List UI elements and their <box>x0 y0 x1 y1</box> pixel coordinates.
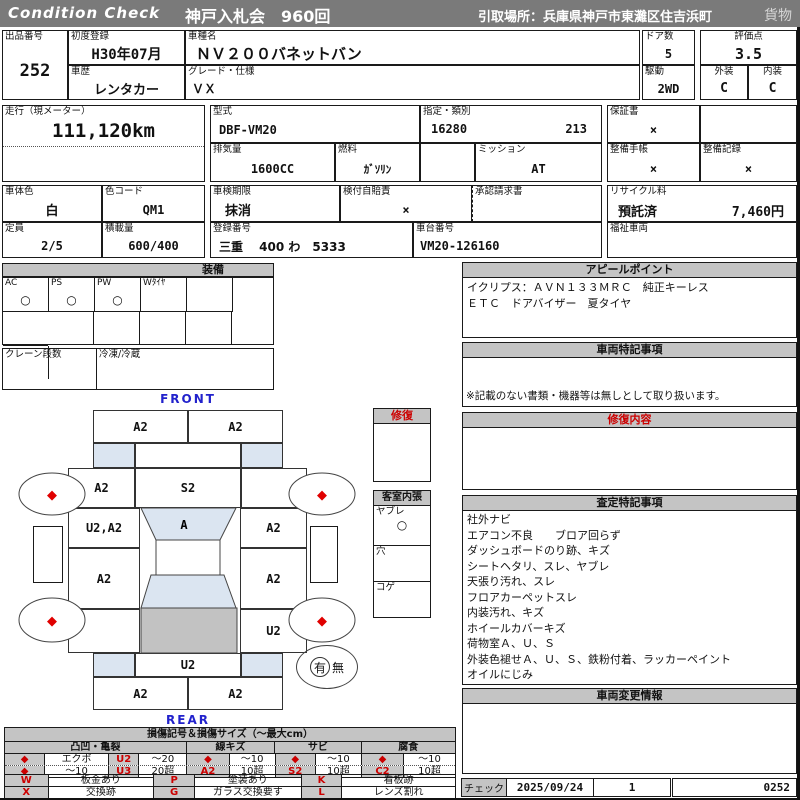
equipment-cell-empty <box>48 312 94 345</box>
inspection-box: 車検期限 抹消 <box>210 185 340 222</box>
assessment-line: 外装色褪せＡ、Ｕ、Ｓ、鉄粉付着、ラッカーペイント <box>463 652 796 668</box>
panel-left-front-fender: A2 <box>68 468 135 508</box>
load-capacity-box: 積載量 600/400 <box>102 222 205 258</box>
interior-grade-label: 内装 <box>749 66 796 78</box>
equipment-cell-ac: AC ○ <box>3 278 49 312</box>
maintenance-record-label: 整備記録 <box>701 144 796 156</box>
recycle-fee-box: リサイクル料 預託済 7,460円 <box>607 185 797 222</box>
legend-symbol: ◆ <box>276 754 316 765</box>
legend-desc: 板金あり <box>49 775 155 786</box>
equipment-label: Wﾀｲﾔ <box>141 278 186 290</box>
legend-symbol: ◆ <box>187 754 229 765</box>
presence-indicator: 有 無 <box>296 645 358 689</box>
history-label: 車歴 <box>69 66 184 78</box>
score-box: 評価点 3.5 <box>700 30 797 65</box>
drive-box: 駆動 2WD <box>642 65 695 100</box>
panel-left-front-door: U2,A2 <box>68 508 140 548</box>
model-name-label: 車種名 <box>186 31 639 43</box>
equipment-cell-wtire: Wﾀｲﾔ <box>141 278 187 312</box>
repair-mini-box: 修復 <box>373 408 431 482</box>
damage-diamond-icon: ◆ <box>317 614 327 629</box>
auction-title: 神戸入札会 960回 <box>185 3 330 27</box>
equipment-label: PS <box>49 278 94 290</box>
panel-rear-bumper-right: A2 <box>188 677 283 710</box>
appeal-line: ＥＴＣ ドアバイザー 夏タイヤ <box>463 296 796 312</box>
panel-taillight-right <box>241 653 283 677</box>
body-color-value: 白 <box>3 198 101 221</box>
registration-number-value: 三重 400 わ 5333 <box>211 235 412 257</box>
exterior-grade-label: 外装 <box>701 66 747 78</box>
legend-group: サビ <box>275 742 361 753</box>
equipment-value <box>141 290 186 311</box>
panel-taillight-left <box>93 653 135 677</box>
legend-row: X 交換跡 G ガラス交換要す L レンズ割れ <box>5 787 455 798</box>
maintenance-book-box: 整備手帳 × <box>607 143 700 182</box>
legend-desc: 塗装あり <box>195 775 302 786</box>
windshield-code: A <box>180 518 188 532</box>
drive-value: 2WD <box>643 78 694 99</box>
presence-no: 無 <box>332 659 344 676</box>
recycle-fee-value: 7,460円 <box>732 201 784 220</box>
vehicle-notes-footer: ※記載のない書類・機器等は無しとして取り扱います。 <box>466 388 725 403</box>
equipment-cell-empty <box>3 312 48 346</box>
assessment-line: 内装汚れ、キズ <box>463 605 796 621</box>
cabin-interior-box: 客室内張 ヤブレ ○ 穴 コゲ <box>373 490 431 618</box>
panel-grille <box>135 443 241 468</box>
load-capacity-value: 600/400 <box>103 235 204 257</box>
exterior-grade-box: 外装 C <box>700 65 748 100</box>
legend-symbol: U2 <box>109 754 139 765</box>
history-value: レンタカー <box>69 78 184 99</box>
score-value: 3.5 <box>701 43 796 64</box>
brand-logo: Condition Check <box>8 4 160 22</box>
cabin-row-burn: コゲ <box>374 582 430 618</box>
assessment-line: ダッシュボードのり跡、キズ <box>463 543 796 559</box>
capacity-box: 定員 2/5 <box>2 222 102 258</box>
damage-legend-table-2: W 板金あり P 塗装あり K 看板跡 X 交換跡 G ガラス交換要す L レン… <box>4 774 456 799</box>
body-color-label: 車体色 <box>3 186 101 198</box>
legend-desc: レンズ割れ <box>342 787 455 798</box>
displacement-value: 1600CC <box>211 156 334 181</box>
damage-legend-table: 損傷記号＆損傷サイズ（～最大cm） 凸凹・亀裂 線キズ サビ 腐食 ◆ エクボ … <box>4 727 456 778</box>
equipment-cell-empty <box>186 312 232 345</box>
equipment-label: AC <box>3 278 48 290</box>
category-badge: 貨物 <box>764 5 792 25</box>
transmission-box: ミッション AT <box>475 143 602 182</box>
repair-content-title: 修復内容 <box>463 413 796 428</box>
equipment-cell-pw: PW ○ <box>95 278 141 312</box>
odometer-label: 走行（現メーター） <box>3 106 204 118</box>
body-color-box: 車体色 白 <box>2 185 102 222</box>
freezer-cell: 冷凍/冷蔵 <box>97 349 273 389</box>
appeal-title: アピールポイント <box>463 263 796 278</box>
doors-box: ドア数 5 <box>642 30 695 65</box>
appeal-line: イクリプス：ＡＶＮ１３３ＭＲＣ 純正キーレス <box>463 280 796 296</box>
interior-grade-box: 内装 C <box>748 65 797 100</box>
approval-box: 承認請求書 <box>472 185 602 222</box>
legend-group: 線キズ <box>187 742 275 753</box>
check-date: 2025/09/24 <box>507 778 594 797</box>
grade-box: グレード・仕様 ＶＸ <box>185 65 640 100</box>
chassis-number-label: 車台番号 <box>414 223 601 235</box>
check-label: チェック <box>461 778 507 797</box>
maintenance-record-box: 整備記録 × <box>700 143 797 182</box>
load-capacity-label: 積載量 <box>103 223 204 235</box>
legend-symbol: ◆ <box>5 754 45 765</box>
color-code-box: 色コード QM1 <box>102 185 205 222</box>
equipment-cell-empty <box>94 312 140 345</box>
first-reg-label: 初度登録 <box>69 31 184 43</box>
warranty-box: 保証書 × <box>607 105 700 143</box>
title-bar: Condition Check 神戸入札会 960回 引取場所：兵庫県神戸市東灘… <box>0 0 800 27</box>
lot-value: 252 <box>3 43 67 99</box>
check-row: チェック 2025/09/24 1 <box>461 778 671 797</box>
damage-diamond-icon: ◆ <box>47 614 57 629</box>
transmission-value: AT <box>476 156 601 181</box>
front-label: FRONT <box>93 392 283 406</box>
welfare-vehicle-label: 福祉車両 <box>608 223 796 235</box>
history-box: 車歴 レンタカー <box>68 65 185 100</box>
class-number: 16280 <box>431 122 467 136</box>
legend-group: 腐食 <box>362 742 455 753</box>
odometer-note-area <box>3 146 204 177</box>
legend-group-row: 凸凹・亀裂 線キズ サビ 腐食 <box>5 742 455 754</box>
welfare-vehicle-box: 福祉車両 <box>607 222 797 258</box>
assessment-line: シートヘタリ、スレ、ヤブレ <box>463 559 796 575</box>
panel-left-rear-fender <box>68 609 140 653</box>
legend-symbol: X <box>5 787 49 798</box>
sheet-code-box: 0252 <box>672 778 797 797</box>
crane-cell: クレーン段数 <box>3 349 97 389</box>
assessment-section: 査定特記事項 社外ナビ エアコン不良 ブロア回らず ダッシュボードのり跡、キズ … <box>462 495 797 685</box>
panel-left-sill <box>33 526 63 583</box>
crane-label: クレーン段数 <box>3 349 96 361</box>
legend-desc: ～10 <box>404 754 455 765</box>
equipment-value: ○ <box>95 290 140 311</box>
panel-right-rear-fender: U2 <box>240 609 307 653</box>
maintenance-record-value: × <box>701 156 796 181</box>
panel-right-front-door: A2 <box>240 508 307 548</box>
legend-desc: ～10 <box>230 754 276 765</box>
model-code-value: DBF-VM20 <box>211 118 419 142</box>
legend-desc: ～20 <box>139 754 187 765</box>
assessment-line: 天張り汚れ、スレ <box>463 574 796 590</box>
equipment-label: PW <box>95 278 140 290</box>
interior-grade-value: C <box>749 78 796 99</box>
legend-symbol: L <box>302 787 343 798</box>
crane-freezer-box: クレーン段数 冷凍/冷蔵 <box>2 348 274 390</box>
legend-symbol: ◆ <box>362 754 404 765</box>
drive-label: 駆動 <box>643 66 694 78</box>
exterior-grade-value: C <box>701 78 747 99</box>
equipment-cell-empty <box>187 278 233 312</box>
repair-mini-title: 修復 <box>374 409 430 424</box>
warranty-value: × <box>608 118 699 142</box>
presence-yes-circled: 有 <box>310 657 330 677</box>
condition-check-sheet: Condition Check 神戸入札会 960回 引取場所：兵庫県神戸市東灘… <box>0 0 800 800</box>
recycle-status: 預託済 <box>618 201 657 220</box>
approval-label: 承認請求書 <box>473 186 601 198</box>
check-count: 1 <box>594 778 671 797</box>
legend-desc: エクボ <box>45 754 109 765</box>
transmission-label: ミッション <box>476 144 601 156</box>
panel-right-front-fender <box>241 468 307 508</box>
legend-desc: ～10 <box>316 754 362 765</box>
panel-front-bumper-left: A2 <box>93 410 188 443</box>
damage-diamond-icon: ◆ <box>47 488 57 503</box>
registration-number-label: 登録番号 <box>211 223 412 235</box>
first-reg-value: H30年07月 <box>69 43 184 64</box>
legend-row: W 板金あり P 塗装あり K 看板跡 <box>5 775 455 787</box>
vehicle-changes-section: 車両変更情報 <box>462 688 797 774</box>
recycle-fee-label: リサイクル料 <box>608 186 796 198</box>
roof-shape <box>141 608 237 653</box>
vehicle-notes-section: 車両特記事項 ※記載のない書類・機器等は無しとして取り扱います。 <box>462 342 797 407</box>
insurance-value: × <box>341 198 471 221</box>
appeal-section: アピールポイント イクリプス：ＡＶＮ１３３ＭＲＣ 純正キーレス ＥＴＣ ドアバイ… <box>462 262 797 338</box>
model-name-box: 車種名 ＮＶ２００バネットバン <box>185 30 640 65</box>
assessment-line: フロアカーペットスレ <box>463 590 796 606</box>
chassis-number-value: VM20-126160 <box>414 235 601 257</box>
legend-symbol: G <box>154 787 195 798</box>
lot-label: 出品番号 <box>3 31 67 43</box>
legend-desc: 交換跡 <box>49 787 155 798</box>
chassis-number-box: 車台番号 VM20-126160 <box>413 222 602 258</box>
warranty-label: 保証書 <box>608 106 699 118</box>
cabin-row-label: 穴 <box>374 546 430 558</box>
equipment-value: ○ <box>49 290 94 311</box>
repair-content-section: 修復内容 <box>462 412 797 490</box>
insurance-label: 検付自賠責 <box>341 186 471 198</box>
assessment-line: ホイールカバーキズ <box>463 621 796 637</box>
color-code-label: 色コード <box>103 186 204 198</box>
panel-headlight-right <box>241 443 283 468</box>
color-code-value: QM1 <box>103 198 204 221</box>
panel-right-slide-door: A2 <box>240 548 307 609</box>
cabin-row-hole: 穴 <box>374 546 430 582</box>
insurance-box: 検付自賠責 × <box>340 185 472 222</box>
fuel-value: ｶﾞｿﾘﾝ <box>336 156 419 181</box>
odometer-box: 走行（現メーター） 111,120km <box>2 105 205 182</box>
fuel-label: 燃料 <box>336 144 419 156</box>
equipment-grid: AC ○ PS ○ PW ○ Wﾀｲﾔ <box>2 277 274 345</box>
cab-roof-shape <box>156 540 220 575</box>
inspection-label: 車検期限 <box>211 186 339 198</box>
cabin-interior-title: 客室内張 <box>374 491 430 506</box>
freezer-label: 冷凍/冷蔵 <box>97 349 273 361</box>
inspection-value: 抹消 <box>211 198 339 221</box>
score-label: 評価点 <box>701 31 796 43</box>
model-code-label: 型式 <box>211 106 419 118</box>
panel-front-bumper-right: A2 <box>188 410 283 443</box>
first-reg-box: 初度登録 H30年07月 <box>68 30 185 65</box>
cabin-row-value: ○ <box>374 518 430 532</box>
lot-box: 出品番号 252 <box>2 30 68 100</box>
assessment-line: オイルにじみ <box>463 667 796 683</box>
class-box: 指定・類別 16280 213 <box>420 105 602 143</box>
panel-hood: S2 <box>135 468 241 508</box>
panel-right-sill <box>310 526 338 583</box>
class-label: 指定・類別 <box>421 106 601 118</box>
maintenance-book-value: × <box>608 156 699 181</box>
legend-symbol: K <box>302 775 343 786</box>
cabin-row-label: コゲ <box>374 582 430 594</box>
fuel-box: 燃料 ｶﾞｿﾘﾝ <box>335 143 420 182</box>
legend-row: ◆ エクボ U2 ～20 ◆ ～10 ◆ ～10 ◆ ～10 <box>5 754 455 766</box>
rear-label: REAR <box>93 713 283 727</box>
panel-headlight-left <box>93 443 135 468</box>
assessment-line: 荷物室Ａ、Ｕ、Ｓ <box>463 636 796 652</box>
vehicle-changes-title: 車両変更情報 <box>463 689 796 704</box>
pickup-location: 引取場所：兵庫県神戸市東灘区住吉浜町 <box>478 6 712 25</box>
vehicle-notes-title: 車両特記事項 <box>463 343 796 358</box>
rear-window-shape <box>141 575 236 608</box>
empty-cell <box>700 105 797 143</box>
odometer-value: 111,120km <box>3 120 204 142</box>
model-name-value: ＮＶ２００バネットバン <box>186 43 639 64</box>
grade-label: グレード・仕様 <box>186 66 639 78</box>
legend-desc: 看板跡 <box>342 775 455 786</box>
cabin-row-label: ヤブレ <box>374 506 430 518</box>
equipment-title-bar: 装備 <box>2 263 274 277</box>
legend-title: 損傷記号＆損傷サイズ（～最大cm） <box>5 728 455 742</box>
assessment-title: 査定特記事項 <box>463 496 796 511</box>
equipment-cell-ps: PS ○ <box>49 278 95 312</box>
equipment-cell-empty <box>140 312 186 345</box>
legend-symbol: W <box>5 775 49 786</box>
assessment-line: エアコン不良 ブロア回らず <box>463 528 796 544</box>
empty-cell <box>420 143 475 182</box>
doors-label: ドア数 <box>643 31 694 43</box>
displacement-label: 排気量 <box>211 144 334 156</box>
maintenance-book-label: 整備手帳 <box>608 144 699 156</box>
legend-group: 凸凹・亀裂 <box>5 742 187 753</box>
panel-left-slide-door: A2 <box>68 548 140 609</box>
cabin-row-tear: ヤブレ ○ <box>374 506 430 546</box>
windshield-shape <box>141 508 236 540</box>
capacity-value: 2/5 <box>3 235 101 257</box>
equipment-value: ○ <box>3 290 48 311</box>
panel-rear-bumper-left: A2 <box>93 677 188 710</box>
grade-value: ＶＸ <box>186 78 639 99</box>
assessment-line: 社外ナビ <box>463 512 796 528</box>
model-code-box: 型式 DBF-VM20 <box>210 105 420 143</box>
panel-rear-gate: U2 <box>135 653 241 677</box>
legend-symbol: P <box>154 775 195 786</box>
registration-number-box: 登録番号 三重 400 わ 5333 <box>210 222 413 258</box>
displacement-box: 排気量 1600CC <box>210 143 335 182</box>
class-number-2: 213 <box>565 122 587 136</box>
doors-value: 5 <box>643 43 694 64</box>
capacity-label: 定員 <box>3 223 101 235</box>
legend-desc: ガラス交換要す <box>195 787 302 798</box>
damage-diamond-icon: ◆ <box>317 488 327 503</box>
